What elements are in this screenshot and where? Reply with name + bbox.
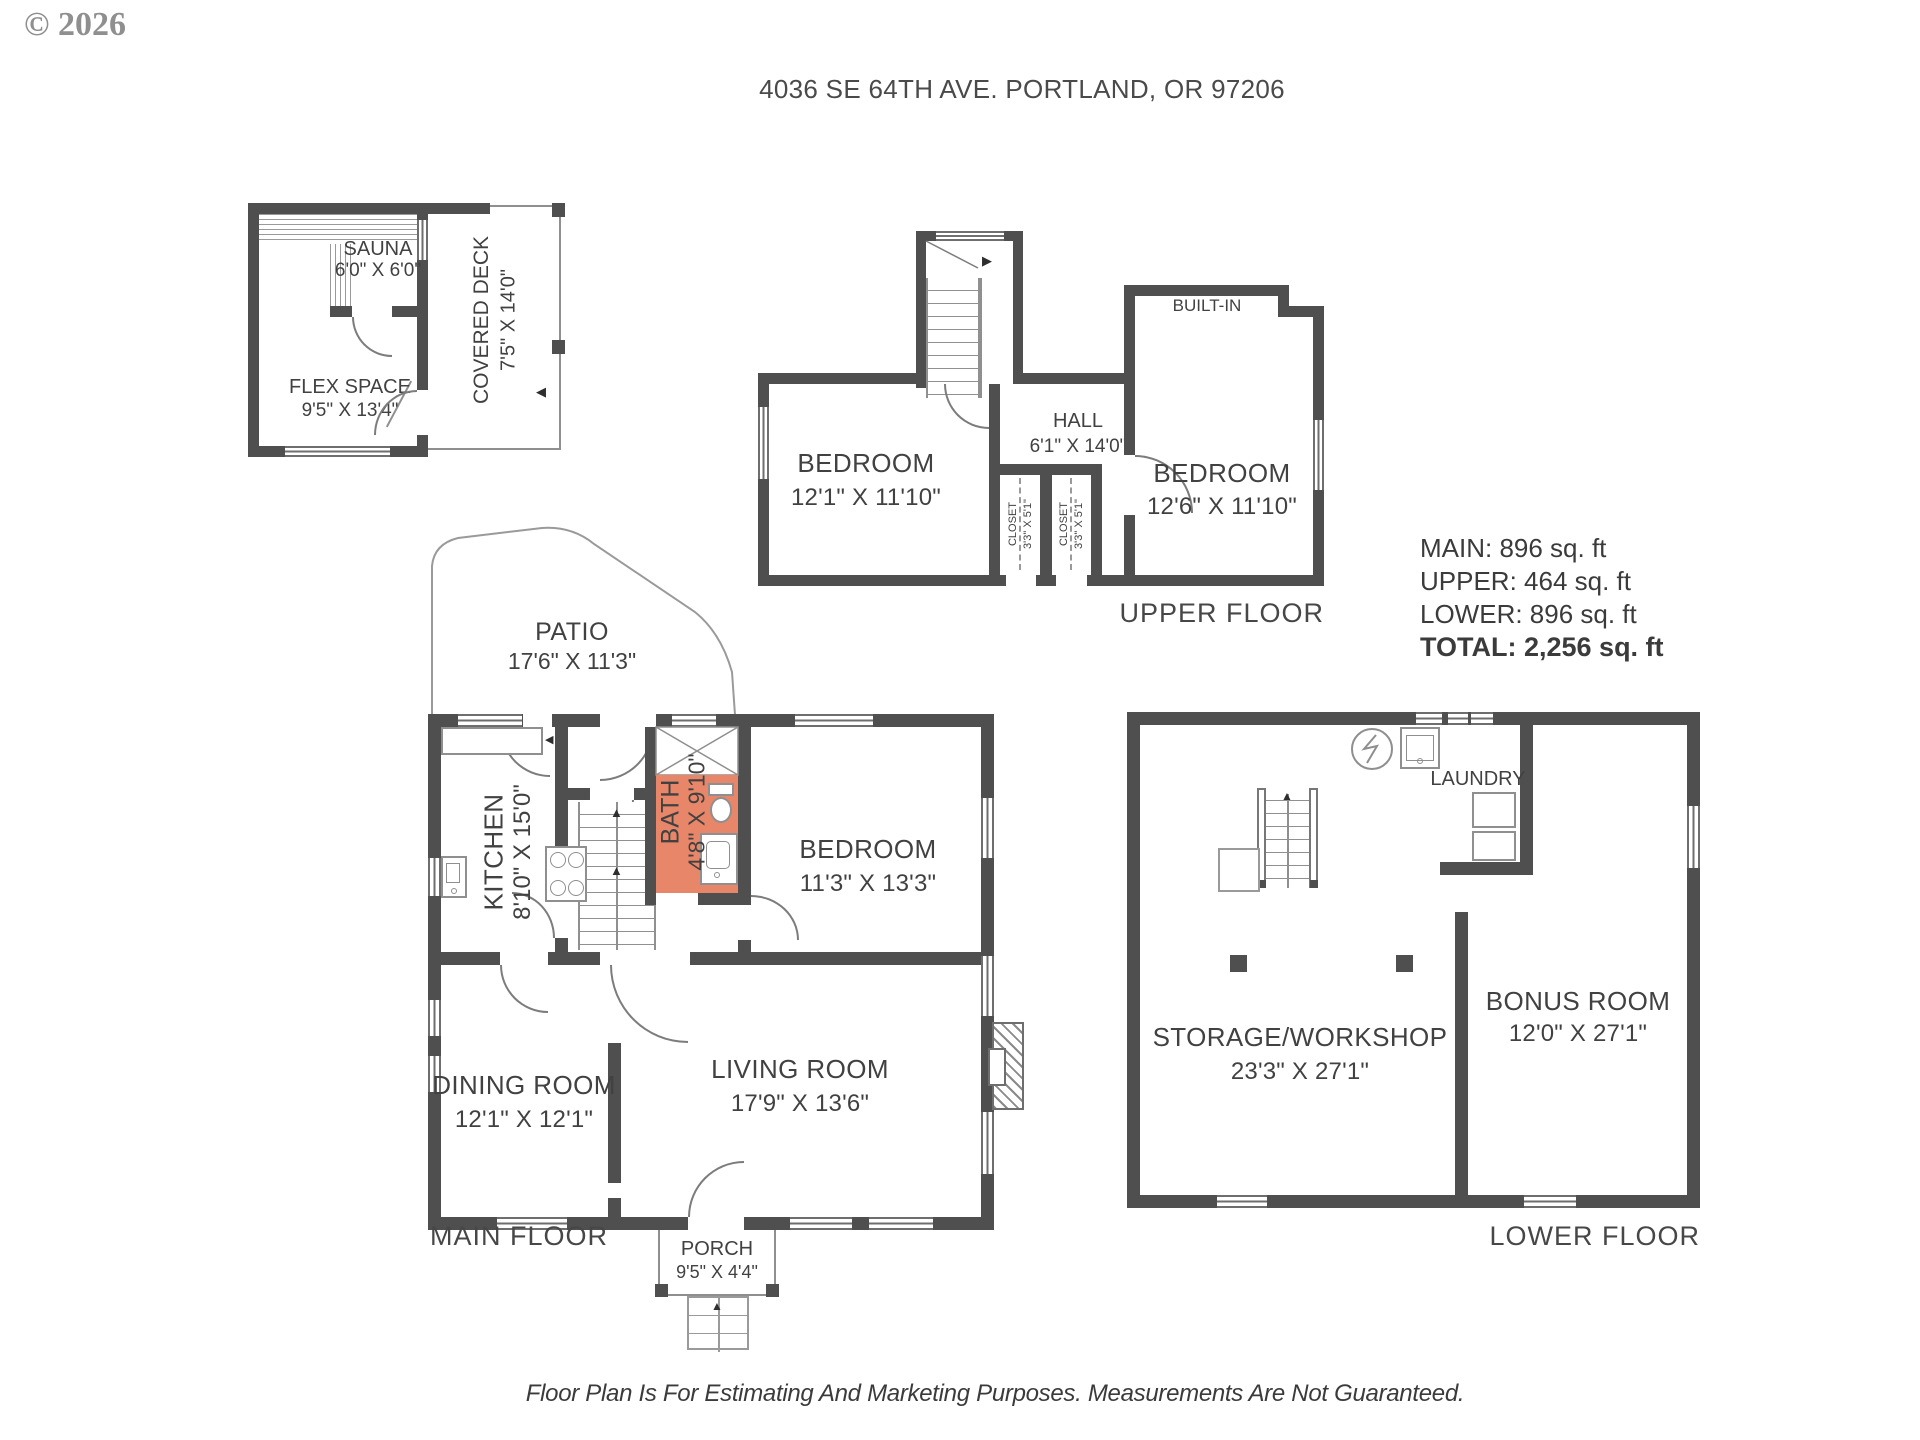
upper-bedroom-door-arc — [944, 384, 989, 429]
lower-window-right — [1687, 806, 1700, 868]
washer-icon — [1472, 792, 1516, 828]
lower-window-top-1 — [1416, 712, 1442, 725]
kitchen-sink-drain-icon — [451, 888, 457, 894]
floor-plan-page: © 2026 4036 SE 64TH AVE. PORTLAND, OR 97… — [0, 0, 1920, 1440]
page-title: 4036 SE 64TH AVE. PORTLAND, OR 97206 — [759, 74, 1285, 105]
kitchen-dims: 8'10" X 15'0" — [509, 784, 537, 920]
porch-door-gap — [688, 1217, 744, 1230]
lower-wall-right — [1687, 712, 1700, 1208]
upper-wall-left — [758, 373, 769, 586]
kitchen-patio-door-gap — [523, 714, 552, 727]
living-entry-arc — [610, 965, 688, 1043]
closet1-rod — [1019, 478, 1021, 570]
lower-wall-left — [1127, 712, 1140, 1208]
covered-deck-dims: 7'5" X 14'0" — [498, 269, 521, 371]
kitchen-sink-basin-icon — [446, 863, 460, 883]
kitchen-label: KITCHEN — [479, 794, 510, 911]
storage-workshop-label: STORAGE/WORKSHOP — [1153, 1022, 1448, 1053]
main-bedroom-door-arc — [751, 895, 799, 940]
deck-post-topright — [552, 203, 565, 217]
kitchen-closet-wall-h1 — [555, 788, 590, 800]
deck-entry-arrow-icon: ◀ — [536, 385, 546, 398]
main-window-top-1 — [458, 714, 522, 727]
stove-icon — [545, 846, 587, 902]
bath-wall-right-stub — [738, 940, 751, 965]
hall-bedroom-wall-upper — [1124, 384, 1135, 455]
vanity-drain-icon — [714, 872, 720, 878]
lower-stair-foot-right — [1310, 880, 1318, 888]
dining-door-arc — [500, 965, 548, 1013]
dining-living-wall — [608, 1043, 621, 1183]
area-total: TOTAL: 2,256 sq. ft — [1420, 631, 1664, 664]
closet1-bifold-gap — [1006, 575, 1036, 586]
main-window-right-2 — [981, 956, 994, 1016]
stairs-up-arrow-1-icon: ▲ — [610, 806, 623, 819]
upper-bedroom-left-dims: 12'1" X 11'10" — [791, 484, 941, 512]
bath-label: BATH — [657, 780, 686, 845]
lower-stairs-up-arrow-icon: ▲ — [1281, 790, 1293, 802]
sauna-label: SAUNA — [344, 238, 413, 261]
porch-dims: 9'5" X 4'4" — [676, 1262, 758, 1283]
lower-window-bottom-1 — [1217, 1195, 1267, 1208]
closet-wall-middle — [1040, 464, 1052, 575]
covered-deck-label: COVERED DECK — [470, 236, 494, 404]
closet-arrow-icon: ◀ — [545, 735, 553, 746]
dryer-icon — [1472, 831, 1516, 861]
kitchen-closet-wall-v — [555, 727, 568, 788]
flex-window-bottom — [285, 446, 390, 457]
fireplace-firebox — [988, 1048, 1006, 1086]
upper-bedroom-right-label: BEDROOM — [1153, 458, 1290, 489]
upper-stairs — [926, 278, 980, 398]
lower-wall-bottom — [1127, 1195, 1700, 1208]
sauna-dims: 6'0" X 6'0" — [335, 260, 421, 282]
main-window-top-2 — [672, 714, 716, 727]
hall-bedroom-wall-lower — [1124, 515, 1135, 575]
nook-wall-left — [1124, 285, 1135, 384]
stair-up-arrow-icon: ▶ — [982, 254, 992, 267]
lower-window-bottom-2 — [1524, 1195, 1576, 1208]
interior-wall-h-2 — [548, 952, 600, 965]
lower-window-top-2 — [1448, 712, 1468, 725]
main-window-right-3 — [981, 1112, 994, 1174]
lower-floor-label: LOWER FLOOR — [1489, 1221, 1700, 1252]
bath-wall-bottom-2 — [698, 893, 751, 905]
upper-bedroom-right-wall — [989, 384, 1000, 475]
bonus-room-wall — [1455, 912, 1468, 1195]
area-summary: MAIN: 896 sq. ft UPPER: 464 sq. ft LOWER… — [1420, 532, 1664, 664]
area-lower: LOWER: 896 sq. ft — [1420, 598, 1664, 631]
main-window-bottom-2 — [790, 1217, 852, 1230]
porch-label: PORCH — [681, 1238, 753, 1261]
toilet-bowl-icon — [710, 797, 732, 823]
stairs-up-arrow-2-icon: ▲ — [610, 864, 623, 877]
living-room-dims: 17'9" X 13'6" — [731, 1090, 869, 1118]
porch-post-right — [766, 1284, 779, 1297]
closet2-dims: 3'3" X 5'1" — [1073, 499, 1085, 549]
hall-patio-door-gap — [600, 714, 656, 727]
hall-label: HALL — [1053, 410, 1103, 433]
area-upper: UPPER: 464 sq. ft — [1420, 565, 1664, 598]
flex-space-label: FLEX SPACE — [289, 376, 411, 399]
main-window-bottom-3 — [869, 1217, 933, 1230]
hall-dims: 6'1" X 14'0" — [1030, 436, 1127, 458]
stair-diagonal-line — [926, 241, 986, 271]
interior-wall-h-3 — [690, 952, 981, 965]
bath-wall-bottom-1 — [645, 893, 656, 905]
upper-bedroom-left-window — [758, 407, 769, 479]
main-floor-label: MAIN FLOOR — [430, 1221, 608, 1252]
closet-wall-right — [1091, 464, 1102, 575]
kitchen-wall-v-stub — [555, 938, 568, 952]
living-room-label: LIVING ROOM — [711, 1054, 889, 1085]
toilet-icon — [708, 783, 734, 796]
lower-stairs-centerline — [1287, 794, 1289, 888]
kitchen-counter — [441, 727, 543, 755]
porch-up-arrow-icon: ▲ — [711, 1300, 723, 1312]
laundry-wall-v — [1520, 725, 1533, 875]
dining-living-wall-stub — [608, 1198, 621, 1217]
main-window-top-3 — [795, 714, 873, 727]
nook-wall-top — [1124, 285, 1289, 296]
main-window-left-2 — [428, 1000, 441, 1036]
patio-label: PATIO — [535, 618, 609, 647]
laundry-wall-h — [1440, 862, 1533, 875]
upper-bedroom-right-dims: 12'6" X 11'10" — [1147, 493, 1297, 521]
main-window-left-1 — [428, 858, 441, 896]
sauna-door-gap — [352, 306, 392, 317]
hall-wall-top — [1023, 373, 1135, 384]
upper-bedroom-left-label: BEDROOM — [797, 448, 934, 479]
stairwell-window — [936, 231, 1004, 241]
upper-wall-top-left — [758, 373, 916, 384]
lower-wall-top — [1127, 712, 1700, 725]
deck-wall-top — [428, 203, 490, 214]
upper-bedroom-right-window — [1313, 420, 1324, 490]
patio-dims: 17'6" X 11'3" — [508, 648, 636, 675]
main-window-right-1 — [981, 798, 994, 858]
interior-wall-h-1 — [441, 952, 500, 965]
laundry-label: LAUNDRY — [1430, 768, 1525, 791]
lower-window-top-3 — [1471, 712, 1493, 725]
water-heater-icon — [1350, 727, 1396, 773]
utility-sink-drain-icon — [1417, 758, 1423, 764]
closet2-bifold-gap — [1056, 575, 1087, 586]
main-bedroom-label: BEDROOM — [799, 834, 936, 865]
sauna-window — [417, 220, 428, 260]
dining-room-dims: 12'1" X 12'1" — [455, 1106, 593, 1134]
stairwell-wall-right — [1013, 231, 1023, 384]
lower-storage-box — [1218, 848, 1260, 892]
disclaimer: Floor Plan Is For Estimating And Marketi… — [35, 1380, 1920, 1408]
deck-edge-right — [559, 217, 561, 342]
porch-post-left — [655, 1284, 668, 1297]
flex-deck-door-gap — [417, 390, 428, 435]
stairwell-wall-left — [916, 231, 926, 388]
support-post-left — [1230, 955, 1247, 972]
copyright-watermark: © 2026 — [24, 6, 126, 44]
upper-wall-bottom — [758, 575, 1324, 586]
main-wall-left — [428, 714, 441, 1230]
deck-edge-right-lower — [559, 354, 561, 450]
bath-wall-left — [645, 727, 656, 905]
support-post-right — [1396, 955, 1413, 972]
area-main: MAIN: 896 sq. ft — [1420, 532, 1664, 565]
lower-stair-rail-right — [1309, 788, 1318, 888]
closet2-label: CLOSET — [1058, 502, 1070, 546]
bath-wall-right — [738, 727, 751, 895]
bonus-room-label: BONUS ROOM — [1486, 986, 1671, 1017]
deck-post-right — [552, 340, 565, 354]
stair-rail-line — [980, 278, 982, 398]
closet2-rod — [1070, 478, 1072, 570]
bath-dims: 4'8" X 9'10" — [684, 753, 711, 870]
storage-workshop-dims: 23'3" X 27'1" — [1231, 1058, 1369, 1086]
main-bedroom-dims: 11'3" X 13'3" — [800, 870, 936, 898]
dining-room-label: DINING ROOM — [432, 1070, 616, 1101]
deck-edge-bottom — [428, 448, 561, 450]
kitchen-closet-wall-h2 — [634, 788, 645, 800]
upper-floor-label: UPPER FLOOR — [1119, 598, 1324, 629]
closet-wall-left — [989, 464, 1000, 575]
bonus-room-dims: 12'0" X 27'1" — [1509, 1020, 1647, 1048]
closet1-dims: 3'3" X 5'1" — [1022, 499, 1034, 549]
builtin-label: BUILT-IN — [1173, 296, 1242, 316]
closet1-label: CLOSET — [1007, 502, 1019, 546]
front-door-arc — [688, 1161, 744, 1217]
